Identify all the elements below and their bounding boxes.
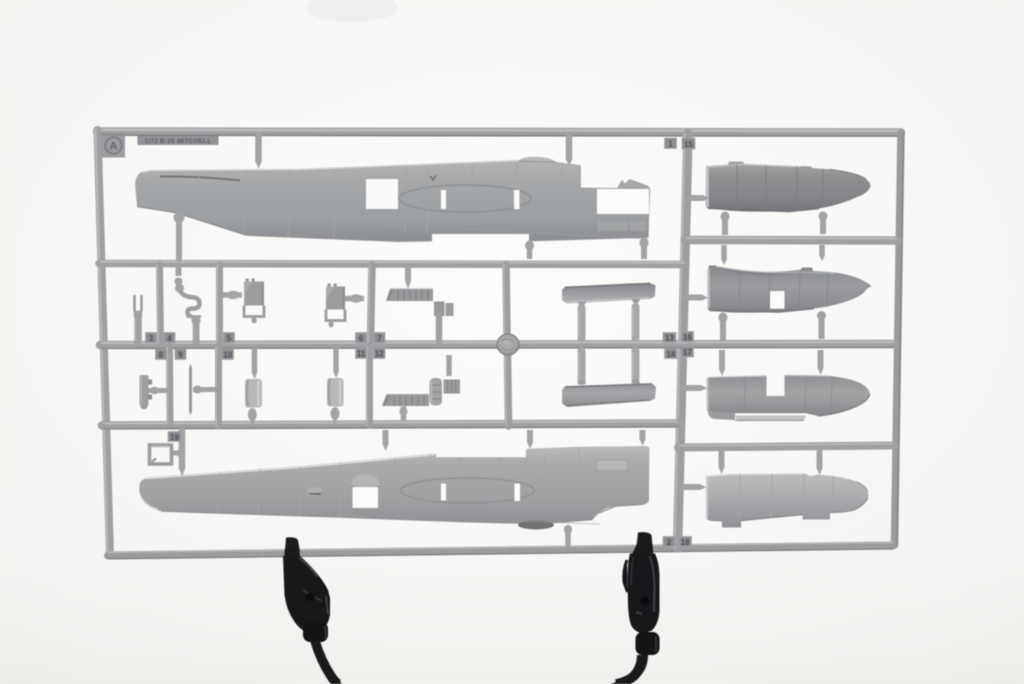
svg-text:16: 16 <box>683 333 692 342</box>
svg-text:9: 9 <box>178 351 183 360</box>
svg-text:6: 6 <box>359 334 364 343</box>
svg-text:1/72 B-25 MITCHELL: 1/72 B-25 MITCHELL <box>145 138 212 145</box>
svg-text:15: 15 <box>684 140 693 149</box>
svg-text:1: 1 <box>668 140 673 149</box>
svg-text:13: 13 <box>665 334 674 343</box>
svg-text:8: 8 <box>159 351 164 360</box>
svg-text:17: 17 <box>683 348 692 357</box>
svg-text:A: A <box>110 141 118 153</box>
svg-text:4: 4 <box>167 334 172 343</box>
svg-text:7: 7 <box>377 334 382 343</box>
svg-text:3: 3 <box>149 334 154 343</box>
svg-text:14: 14 <box>666 350 675 359</box>
svg-text:2: 2 <box>667 538 672 547</box>
svg-text:10: 10 <box>223 351 232 360</box>
svg-text:11: 11 <box>357 350 366 359</box>
svg-text:12: 12 <box>375 350 384 359</box>
svg-text:18: 18 <box>681 538 690 547</box>
svg-text:5: 5 <box>227 334 232 343</box>
svg-text:19: 19 <box>170 433 179 442</box>
